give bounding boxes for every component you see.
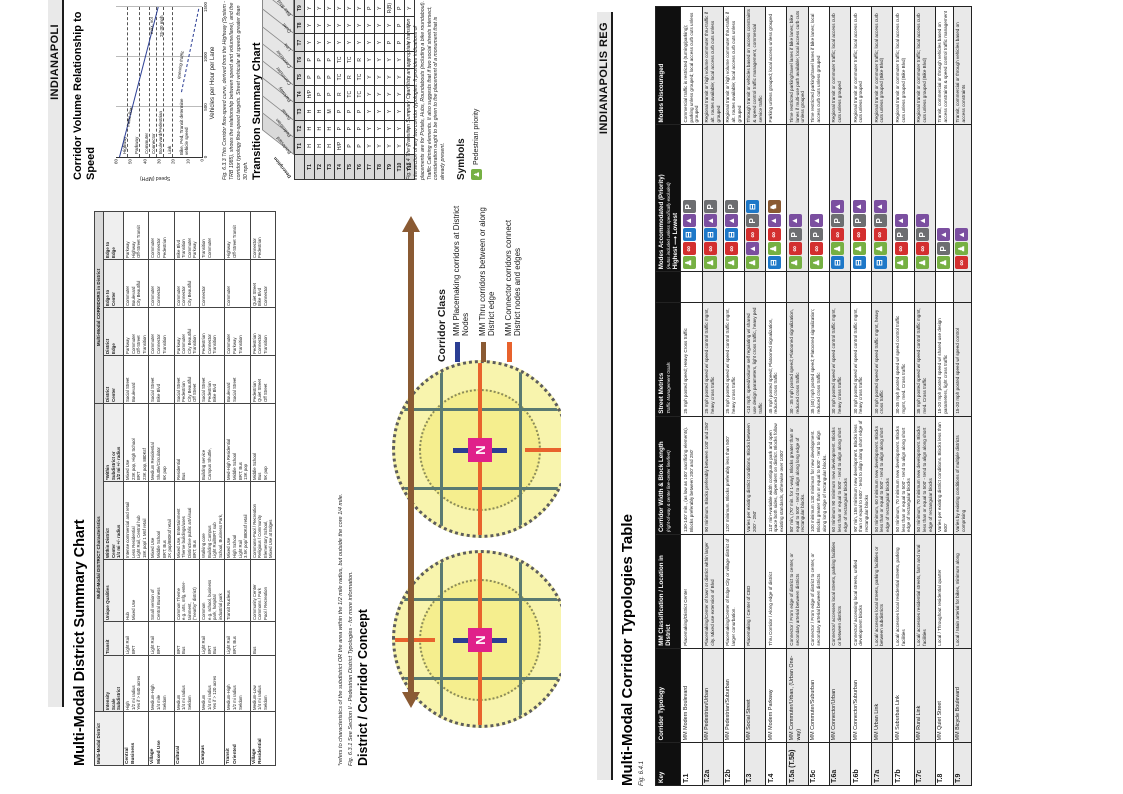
street-metrics-cell: 35 mph posted speed w/ speed control tra… [914,303,935,417]
modes-discouraged-cell: Regional transit or commuter traffic; lo… [914,7,935,125]
auto-mode-icon: ▲ [810,214,823,227]
typology-key: T.5c [808,743,829,786]
column-header: DistrictCenter [103,355,123,403]
modes-accommodated-cell: ♟P▲ [935,125,953,272]
matrix-cell: TC [355,86,365,103]
typology-key: T.7c [914,743,935,786]
classification-cell: Placemaking/Center of town or district w… [702,535,723,649]
typology-key: T.7a [872,743,893,786]
transit-mode-icon: ⊟ [746,200,759,213]
column-header: *WithinSubdistrict or1/2 mi +/- radius [103,403,123,481]
table-cell: Bike BlvdTransitionCommuterParkway [174,211,199,259]
table-row: CampusMedium1/4 mi radiusYes if > 120 ac… [200,211,225,765]
table-cell: HighwayOff-Street Transit [225,211,250,259]
table-cell: CommuterBoulevardCity Beautiful [124,259,149,307]
matrix-cell: Y [375,137,385,154]
classification-cell: Local/ accesses residential streets, far… [914,535,935,649]
target-speed-line [127,7,128,157]
classification-cell: Connector/ accessing local streets, unif… [851,535,872,649]
row-id: T9 [385,155,395,180]
street-metrics-cell: 30 mph posted speed w/ speed control tra… [829,303,850,417]
street-metrics-cell: 30-35 mph posted speed w/ speed control … [893,303,914,417]
table-cell: CommuterParkwayTransition [225,307,250,355]
auto-mode-icon: ▲ [746,242,759,255]
auto-mode-icon: ▲ [955,228,968,241]
table-row: T.6a MM Connector/Urban Connector/ acces… [829,7,850,786]
row-label: Campus [200,712,225,766]
table-cell: Bus [250,622,275,656]
typology-name: MM Social Street [744,648,765,743]
table-cell: Community CenterCommons / ParkPool / Rec… [250,560,275,622]
modes-discouraged-cell: Time restricted parking/travel lanes if … [787,7,808,125]
modes-discouraged-cell: Parking unless grouped; local access unl… [766,7,787,125]
table-cell: Mixed UseMiddle SchoolBRT; Bus2K pop/880… [149,482,174,560]
matrix-cell: P [395,17,405,34]
column-header: Unique Qualities [103,560,123,622]
table-cell: Transit Nucleus [225,560,250,622]
row-label: TransitOriented [225,712,250,766]
matrix-cell: Y [365,86,375,103]
table-cell: Common Themee.g. arts, mfg, enter-tainme… [174,560,199,622]
table-cell: CommuterConnectorTransition [149,307,174,355]
table-cell: ParkwayHighwayOff-Street Transit [124,211,149,259]
modes-discouraged-cell: Regional transit or commuter traffic; lo… [893,7,914,125]
table-cell: Quiet StreetBike BlvdConnector [250,259,275,307]
matrix-cell: R [355,51,365,68]
modes-discouraged-cell: Through transit or vehicles based on acc… [744,7,765,125]
auto-mode-icon: ▲ [937,228,950,241]
matrix-cell: Y [385,120,395,137]
row-id: T10 [395,155,405,180]
parking-mode-icon: P [937,242,950,255]
matrix-cell: Y [305,34,315,51]
max-vol-annotation: max. vol [149,17,154,34]
matrix-cell: P [325,86,335,103]
table-cell: Commuter [225,259,250,307]
typology-name: MM Quiet Street [935,648,953,743]
auto-mode-icon: ▲ [789,214,802,227]
bike-mode-icon: ∞ [955,256,968,269]
y-tick-label: 50 [128,159,133,164]
matrix-cell: Y [345,17,355,34]
width-block-cell: Varies by existing conditions of multipl… [953,416,971,534]
table-cell: CommuterConnectorCity Beautiful [174,259,199,307]
typology-name: MM Modern Boulevard [681,648,702,743]
table-cell: Light RailBRT [124,622,149,656]
table-row: TransitOrientedMedium-High1/2 mi radiusS… [225,211,250,765]
matrix-cell: P [395,34,405,51]
spacer-cell [808,272,829,303]
transit-mode-icon: ⊟ [853,256,866,269]
modes-discouraged-cell: Regional transit or commuter traffic; lo… [872,7,893,125]
table-row: T.8 MM Quiet Street Local / Throughout r… [935,7,953,786]
legend-item-label: MM Connector corridors connect District … [504,204,523,336]
spacer-cell [829,272,850,303]
street-metrics-cell: 35 (40) mph posted speed; Platooned sign… [808,303,829,417]
matrix-cell: P [345,120,355,137]
matrix-cell: Y [375,34,385,51]
matrix-cell: Y [355,34,365,51]
document-canvas: INDIANAPOLI Multi-Modal District Summary… [0,0,1123,794]
matrix-cell: P [335,103,345,120]
corridor-class-legend: Corridor Class MM Placemaking corridors … [436,204,530,362]
parking-mode-icon: P [704,200,717,213]
width-block-cell: 110' min+variable width contiguous park … [766,416,787,534]
classification-cell: Local / Main arterial for bikes, minimum… [953,535,971,649]
matrix-cell: Y [395,51,405,68]
x-tick-label: 1500 [203,2,208,12]
gridline [116,6,202,7]
typology-key: T.6a [829,743,850,786]
parking-mode-icon: P [810,228,823,241]
table-cell: Intense commercial and retailLess Reside… [124,482,149,560]
table-cell: CommuterConnectorPedestrian [149,211,174,259]
matrix-cell: Y [325,34,335,51]
typology-name: MM Commuter/Suburban [808,648,829,743]
modes-accommodated-cell: ⊟♟∞P▲ [851,125,872,272]
width-block-cell: Varies per existing district conditions.… [744,416,765,534]
matrix-cell: Y [315,0,325,17]
district-chart-title: Multi-Modal District Summary Chart [72,519,88,766]
table-cell: Light RailBRTBus [200,622,225,656]
column-header: Street MetricsTraffic Management Goals [656,303,681,417]
typology-name: MM Pedestrian/Urban [702,648,723,743]
target-speed-label: Connector [151,132,156,155]
street-metrics-cell: 15-20 mph posted speed w/ shared use des… [935,303,953,417]
spacer-cell [914,272,935,303]
typology-name: MM Suburban Link [893,648,914,743]
row-label: VillageMixed Use [149,712,174,766]
modes-discouraged-cell: Regional transit or commuter traffic; lo… [829,7,850,125]
modes-discouraged-cell: Transit, commercial or through vehicles … [953,7,971,125]
matrix-cell: Y [325,17,335,34]
pedestrian-mode-icon: ♟ [683,256,696,269]
flow-speed-chart: Speed (MPH) 0102030405060050010001500 Hi… [112,0,218,180]
pedestrian-mode-icon: ♟ [746,256,759,269]
parking-mode-icon: P [746,214,759,227]
y-tick-label: 0 [200,159,205,162]
matrix-cell: P [315,86,325,103]
spacer-cell [681,272,702,303]
legend-item-label: MM Thru corridors between or along Distr… [478,204,497,336]
matrix-cell: Y [365,17,375,34]
spacer-cell [953,272,971,303]
pedestrian-mode-icon: ♟ [916,256,929,269]
auto-mode-icon: ▲ [704,214,717,227]
classification-cell: Connector / From edge of district to cen… [808,535,829,649]
table-cell: Social StreetBoulevard [124,355,149,403]
table-cell: Social StreetPedestrianCity BeautifulOff… [174,355,199,403]
matrix-cell: Y [345,34,355,51]
table-cell: Medium1/4 mi radiusYes if > 120 acres [200,656,225,712]
bike-mode-icon: ∞ [810,242,823,255]
classification-cell: Local / Throughout residential quarter [935,535,953,649]
x-tick-label: 1000 [203,52,208,62]
width-block-cell: 50 minimum, 70 minimum new development. … [893,416,914,534]
table-row: T7YYYYYYYYP [365,0,375,180]
bike-mode-icon: ∞ [916,242,929,255]
symbols-title: Symbols [456,10,467,180]
table-cell: HubMixed Use [124,560,149,622]
table-row: T.7c MM Rural Link Local/ accesses resid… [914,7,935,786]
auto-mode-icon: ▲ [768,214,781,227]
target-speed-label: Boulevard/Pedestrian [158,110,163,155]
row-label: CentralBusiness [124,712,149,766]
table-row: T.2b MM Pedestrian/Suburban Placemaking/… [723,7,744,786]
table-cell: Medium1/4 mi radiusSeldom [174,656,199,712]
table-cell: TransitionCommuter [200,211,225,259]
page-district-summary: INDIANAPOLI Multi-Modal District Summary… [0,0,562,794]
table-cell: Middle SchoolBus5K pop [250,403,275,481]
matrix-cell: Y [385,17,395,34]
column-header-spacer [656,272,681,303]
table-row: T4H/PPPRTCTCYYY [335,0,345,180]
group-header: Multi-Modal CORRIDORS in District [95,211,104,403]
spacer-cell [872,272,893,303]
fig-633-caption: Fig. 6.3.3 This Corridor flow-speed curv… [222,0,249,180]
auto-mode-icon: ▲ [853,200,866,213]
matrix-cell: Y [325,0,335,17]
transition-summary-table: Description Boulevard Pedestrian Social … [264,0,415,180]
matrix-cell: H [305,120,315,137]
legend-item-label: MM Placemaking corridors at District Nod… [452,204,471,336]
typology-key: T.9 [953,743,971,786]
column-header: Key [656,743,681,786]
matrix-cell: P [355,120,365,137]
matrix-cell: Y [375,0,385,17]
auto-mode-icon: ▲ [725,214,738,227]
bike-ped-transit-note: Bike, Ped, Transit determine vehicle spe… [179,85,190,155]
table-row: CentralBusinessHigh1/2 mi radiusYes if >… [124,211,149,765]
table-cell: Building serviceCampus Shuttle, [200,403,225,481]
page-header-banner: INDIANAPOLI [48,0,64,707]
table-group-header-row: Multi-Modal District Multi-Modal DISTRIC… [95,211,104,765]
y-tick-label: 20 [171,159,176,164]
pedestrian-mode-icon: ♟ [874,242,887,255]
parking-mode-icon: P [725,200,738,213]
table-row: T5PPPTCRTCYYY [345,0,355,180]
typology-name: MM Pedestrian/Suburban [723,648,744,743]
table-cell: Social StreetPedestrianBike Blvd [200,355,225,403]
row-id: T6 [355,155,365,180]
modes-accommodated-cell: ♟▲∞P⊟ [744,125,765,272]
target-speed-label: Parkway [134,136,139,155]
matrix-cell: Y [375,86,385,103]
matrix-cell: P [335,120,345,137]
column-header: Multi-Modal District [95,712,124,766]
table-cell: Medium-High1/2 mi radiusSeldom [225,656,250,712]
row-id: T3 [325,155,335,180]
legend-item: MM Connector corridors connect District … [504,204,523,362]
auto-mode-icon: ▲ [874,200,887,213]
matrix-cell: H [315,137,325,154]
table-row: T2HHHPPPYYY [315,0,325,180]
width-block-cell: 80' min, (70' min. for 1-way). Blocks gr… [787,416,808,534]
table-row: T.7a MM Urban Link Local/ accesses local… [872,7,893,786]
modes-discouraged-cell: Transit, commercial or through vehicles … [935,7,953,125]
matrix-cell: H [305,103,315,120]
matrix-cell: TC [345,51,355,68]
column-header: Corridor Typology [656,648,681,743]
matrix-cell: Y [385,51,395,68]
parking-mode-icon: P [853,214,866,227]
pedestrian-mode-icon: ♟ [768,242,781,255]
bike-mode-icon: ∞ [768,228,781,241]
table-row: T.3 MM Social Street Placemaking / Cente… [744,7,765,786]
y-axis-label: Speed (MPH) [140,175,170,181]
table-row: T.7b MM Suburban Link Local/ accesses lo… [893,7,914,786]
bike-mode-icon: ∞ [895,242,908,255]
auto-mode-icon: ▲ [916,214,929,227]
connector-corridor-line [525,449,562,453]
table-cell: ResidentialBus [174,403,199,481]
table-cell: CommuterConnector [149,259,174,307]
column-header: DistrictEdge [103,307,123,355]
matrix-cell: H [325,137,335,154]
table-cell: Light RailBRT [149,622,174,656]
bike-mode-icon: ∞ [831,228,844,241]
thru-corridor-arrow [402,216,420,708]
column-header: Within DistrictCenter1/4 mi +/- radius [103,482,123,560]
matrix-cell: P [315,51,325,68]
width-block-cell: 90 minimum. Blocks preferably between 10… [702,416,723,534]
chart-plot-area: 0102030405060050010001500 Highway Parkwa… [116,7,203,158]
matrix-cell: Y [375,120,385,137]
matrix-cell: Y [365,51,375,68]
matrix-cell: Y [395,68,405,85]
table-row: T3HHMPPPYYY [325,0,335,180]
transit-mode-icon: ⊟ [725,228,738,241]
table-cell: BoulevardSocial Street [225,355,250,403]
pedestrian-mode-icon: ♟ [831,242,844,255]
matrix-cell: P [325,51,335,68]
column-id: T7 [295,34,305,51]
row-label: VillageResidential [250,712,275,766]
column-header: Edge toEdge [103,211,123,259]
transition-diagonal-headers: Description Boulevard Pedestrian Social … [264,0,294,180]
row-label: Cultural [174,712,199,766]
table-row: T6PPPTCTCRYYY [355,0,365,180]
legend-color-bar-icon [455,342,460,362]
matrix-cell: Y [305,17,315,34]
x-tick-label: 500 [203,103,208,111]
bike-mode-icon: ∞ [746,228,759,241]
table-header-row: T1T2T3T4T5T6T7T8T9 [295,0,305,180]
table-cell: Connector [200,259,225,307]
matrix-cell: H [305,137,315,154]
modes-accommodated-cell: ⊟♟∞▲♞ [766,125,787,272]
table-cell: Social StreetBike Blvd [149,355,174,403]
x-axis-label: Vehicles per Hour per Lane [210,8,216,158]
matrix-cell: Y [355,0,365,17]
y-tick-label: 60 [114,159,119,164]
table-cell: Light RailBRT, Bus [225,622,250,656]
column-id: T4 [295,86,305,103]
matrix-cell: Y [365,68,375,85]
matrix-cell: H [325,120,335,137]
typology-name: MM Bicycle Boulevard [953,648,971,743]
spacer-cell [787,272,808,303]
table-header-row: IntensityScaleSubdistrictTransitUnique Q… [103,211,123,765]
column-id: T2 [295,120,305,137]
modes-accommodated-cell: ♟∞P▲ [808,125,829,272]
table-row: CulturalMedium1/4 mi radiusSeldomBRTBusC… [174,211,199,765]
y-tick-label: 40 [142,159,147,164]
matrix-cell: R [335,86,345,103]
matrix-cell: Y [385,68,395,85]
column-id: T1 [295,137,305,154]
bike-mode-icon: ∞ [874,228,887,241]
table-row: T.6b MM Connector/Suburban Connector/ ac… [851,7,872,786]
matrix-cell: Y [395,137,405,154]
matrix-cell: Y [365,120,375,137]
typologies-title: Multi-Modal Corridor Typologies Table [619,514,636,786]
fig-634-caption: Fig. 6.3.4 The Transition Summary Chart … [406,0,447,180]
transit-mode-icon: ⊟ [768,256,781,269]
table-row: T9YYYYYYPYR(B) [385,0,395,180]
column-header: Transit [103,622,123,656]
matrix-cell: Y [395,120,405,137]
matrix-cell: H/P [305,86,315,103]
matrix-cell: Y [375,51,385,68]
width-block-cell: 100 minimum 130 minimum for new developm… [808,416,829,534]
page-corridor-typologies: INDIANAPOLIS REG Multi-Modal Corridor Ty… [561,0,1123,794]
matrix-cell: TC [355,68,365,85]
pedestrian-mode-icon: ♟ [895,256,908,269]
matrix-cell: Y [315,34,325,51]
target-speed-line [172,7,173,157]
row-id: T1 [305,155,315,180]
typology-key: T.2b [723,743,744,786]
table-cell: Mixed Use, EntertainmentTheme buildings/… [174,482,199,560]
modes-discouraged-cell: Regional transit or high volume commuter… [702,7,723,125]
legend-color-bar-icon [507,342,512,362]
width-block-cell: 50 minimum, 60 minimum new development. … [872,416,893,534]
table-row: T.2a MM Pedestrian/Urban Placemaking/Cen… [702,7,723,786]
page-header-title: INDIANAPOLIS REG [598,22,610,134]
typology-name: MM Connector/Suburban [851,648,872,743]
matrix-cell: Y [385,86,395,103]
modes-discouraged-cell: Regional transit or high volume commuter… [723,7,744,125]
width-block-cell: 90' min, 155 minimum new development. Bl… [851,416,872,534]
column-header: Edge toCenter [103,259,123,307]
table-cell: Medium-Low1/4 mi radiusSeldom [250,656,275,712]
matrix-cell: R [345,68,355,85]
classification-cell: Placemaking/Center of Edge City or villa… [723,535,744,649]
typology-key: T.4 [766,743,787,786]
district-node: N [468,628,492,652]
spacer-cell [723,272,744,303]
typology-key: T.5a (T.5b) [787,743,808,786]
typologies-fig-ref: Fig. 6.4.1 [639,761,645,786]
typology-key: T.2a [702,743,723,786]
district-summary-table: Multi-Modal District Multi-Modal DISTRIC… [94,211,276,766]
column-header: IntensityScaleSubdistrict [103,656,123,712]
typology-name: MM Modern Parkway [766,648,787,743]
district-fig-ref: Fig. 6.3.1 See Section II - Pedestrian D… [348,571,354,766]
district-node: N [468,438,492,462]
modes-accommodated-cell: ♟∞⊟▲P [681,125,702,272]
group-header: Multi-Modal DISTRICT Characteristics [95,403,104,711]
street-metrics-cell: <10 mph; speed/volume self regulating w/… [744,303,765,417]
auto-mode-icon: ▲ [895,214,908,227]
equestrian-mode-icon: ♞ [768,200,781,213]
column-id: T3 [295,103,305,120]
modes-discouraged-cell: Commercial traffic is restricted (turnin… [681,7,702,125]
street-grid-line [519,363,522,535]
row-id: T2 [315,155,325,180]
matrix-cell: P [345,103,355,120]
